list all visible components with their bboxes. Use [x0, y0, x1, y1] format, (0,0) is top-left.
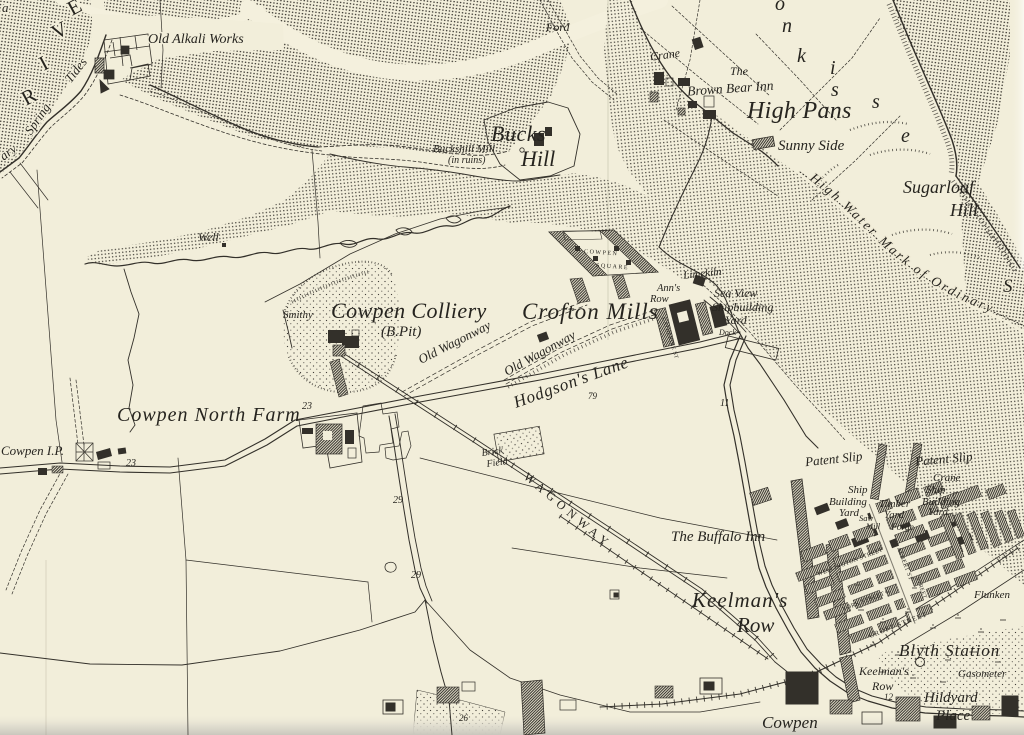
svg-text:23: 23: [302, 401, 312, 412]
svg-text:29: 29: [411, 570, 421, 581]
svg-text:12: 12: [884, 692, 894, 702]
svg-text:Yard: Yard: [884, 509, 904, 521]
svg-text:Hill: Hill: [949, 200, 978, 220]
svg-text:The Buffalo Inn: The Buffalo Inn: [671, 529, 765, 545]
svg-text:Well: Well: [198, 230, 220, 244]
svg-text:Row: Row: [871, 679, 893, 693]
svg-text:Bucks: Bucks: [491, 121, 546, 146]
svg-text:Ship: Ship: [926, 484, 946, 496]
svg-text:Yard: Yard: [839, 507, 859, 519]
svg-text:Cowpen: Cowpen: [762, 713, 818, 732]
svg-text:Keelman's: Keelman's: [691, 588, 788, 612]
svg-text:n: n: [782, 15, 792, 37]
svg-text:The: The: [730, 64, 749, 78]
svg-text:High Pans: High Pans: [746, 98, 852, 124]
svg-text:Forge: Forge: [890, 523, 914, 533]
svg-text:a: a: [2, 0, 9, 15]
svg-text:(in ruins): (in ruins): [448, 155, 486, 166]
svg-text:k: k: [797, 45, 807, 67]
svg-text:Cowpen Colliery: Cowpen Colliery: [331, 298, 487, 323]
svg-text:(B.Pit): (B.Pit): [381, 324, 421, 340]
svg-text:Row: Row: [649, 294, 669, 305]
svg-text:Sunny Side: Sunny Side: [778, 138, 845, 154]
svg-text:29: 29: [393, 495, 403, 506]
svg-text:Shipbuilding: Shipbuilding: [712, 300, 773, 314]
svg-text:23: 23: [126, 458, 136, 469]
svg-text:Blyth Station: Blyth Station: [899, 641, 1000, 660]
svg-text:Yard: Yard: [928, 506, 948, 518]
svg-text:o: o: [775, 0, 785, 15]
svg-text:Old Alkali Works: Old Alkali Works: [148, 32, 244, 47]
svg-text:Hill: Hill: [520, 146, 555, 171]
svg-text:Flunken: Flunken: [973, 589, 1011, 601]
svg-text:26: 26: [459, 713, 469, 723]
svg-text:S: S: [1003, 276, 1013, 297]
svg-text:Cowpen North Farm: Cowpen North Farm: [117, 404, 301, 426]
svg-text:Ann's: Ann's: [656, 283, 680, 294]
svg-text:Place: Place: [935, 708, 970, 724]
svg-text:Crofton Mills: Crofton Mills: [522, 299, 659, 324]
svg-text:Crane: Crane: [933, 472, 961, 484]
svg-text:Row: Row: [736, 613, 774, 637]
svg-text:Dock: Dock: [718, 328, 736, 337]
svg-text:i: i: [830, 57, 836, 79]
svg-text:Cowpen I.P.: Cowpen I.P.: [1, 443, 64, 458]
svg-text:11: 11: [720, 398, 729, 409]
svg-text:e: e: [901, 125, 910, 147]
svg-text:Yard: Yard: [725, 313, 748, 327]
svg-text:Keelman's: Keelman's: [858, 664, 909, 678]
svg-text:79: 79: [588, 391, 598, 401]
svg-text:Mill: Mill: [865, 521, 881, 531]
svg-text:s: s: [831, 79, 839, 101]
svg-text:Buckshill Mill: Buckshill Mill: [433, 143, 495, 155]
svg-text:Sea View: Sea View: [714, 286, 757, 300]
svg-text:Gasometer: Gasometer: [958, 668, 1007, 680]
svg-text:s: s: [872, 91, 880, 113]
svg-text:Hildyard: Hildyard: [923, 690, 978, 706]
svg-text:Smithy: Smithy: [283, 309, 313, 321]
svg-text:Sugarloaf: Sugarloaf: [903, 177, 977, 197]
svg-text:Ship: Ship: [848, 484, 868, 496]
svg-text:Ford: Ford: [545, 20, 571, 34]
